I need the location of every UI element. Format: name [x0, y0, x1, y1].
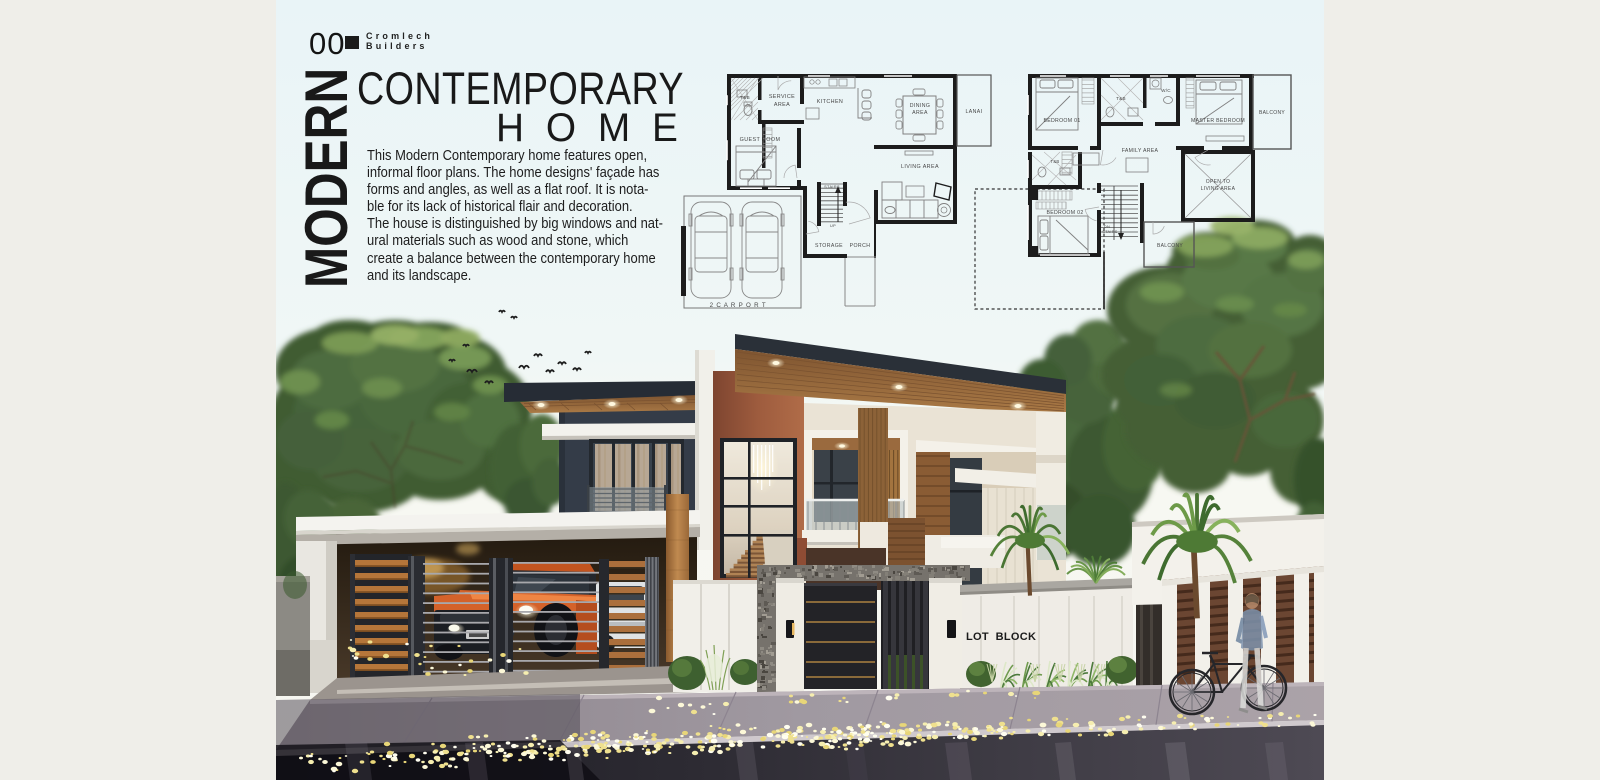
svg-text:MASTER BEDROOM: MASTER BEDROOM	[1191, 118, 1245, 124]
svg-text:T&B: T&B	[1050, 159, 1059, 164]
svg-text:BEDROOM 02: BEDROOM 02	[1046, 210, 1083, 216]
svg-text:KITCHEN: KITCHEN	[817, 99, 843, 105]
svg-text:LIVING AREA: LIVING AREA	[1201, 186, 1236, 192]
svg-text:BEDROOM 01: BEDROOM 01	[1043, 118, 1080, 124]
svg-text:BALCONY: BALCONY	[1259, 110, 1285, 116]
svg-text:STAIRS: STAIRS	[1102, 230, 1117, 234]
svg-text:GUEST ROOM: GUEST ROOM	[740, 137, 781, 143]
svg-text:T&B: T&B	[740, 95, 750, 100]
svg-text:LIVING AREA: LIVING AREA	[901, 164, 939, 170]
svg-text:T&B: T&B	[1116, 96, 1126, 101]
svg-text:2 C A R P O R T: 2 C A R P O R T	[710, 302, 767, 309]
svg-text:AREA: AREA	[912, 110, 928, 116]
svg-text:OPEN TO: OPEN TO	[1206, 179, 1230, 185]
svg-text:LOT BLOCK: LOT BLOCK	[966, 631, 1036, 643]
svg-text:UP: UP	[830, 224, 836, 228]
svg-text:AREA: AREA	[774, 102, 790, 108]
svg-text:DN: DN	[1104, 225, 1110, 229]
svg-text:DINING: DINING	[910, 103, 931, 109]
svg-text:W/C: W/C	[1161, 88, 1171, 93]
svg-text:STORAGE: STORAGE	[815, 243, 843, 249]
svg-text:SERVICE: SERVICE	[769, 94, 795, 100]
svg-text:PORCH: PORCH	[850, 243, 871, 249]
svg-text:FAMILY AREA: FAMILY AREA	[1122, 148, 1159, 154]
svg-text:BALCONY: BALCONY	[1157, 243, 1183, 249]
svg-text:STAIRS: STAIRS	[824, 185, 840, 189]
